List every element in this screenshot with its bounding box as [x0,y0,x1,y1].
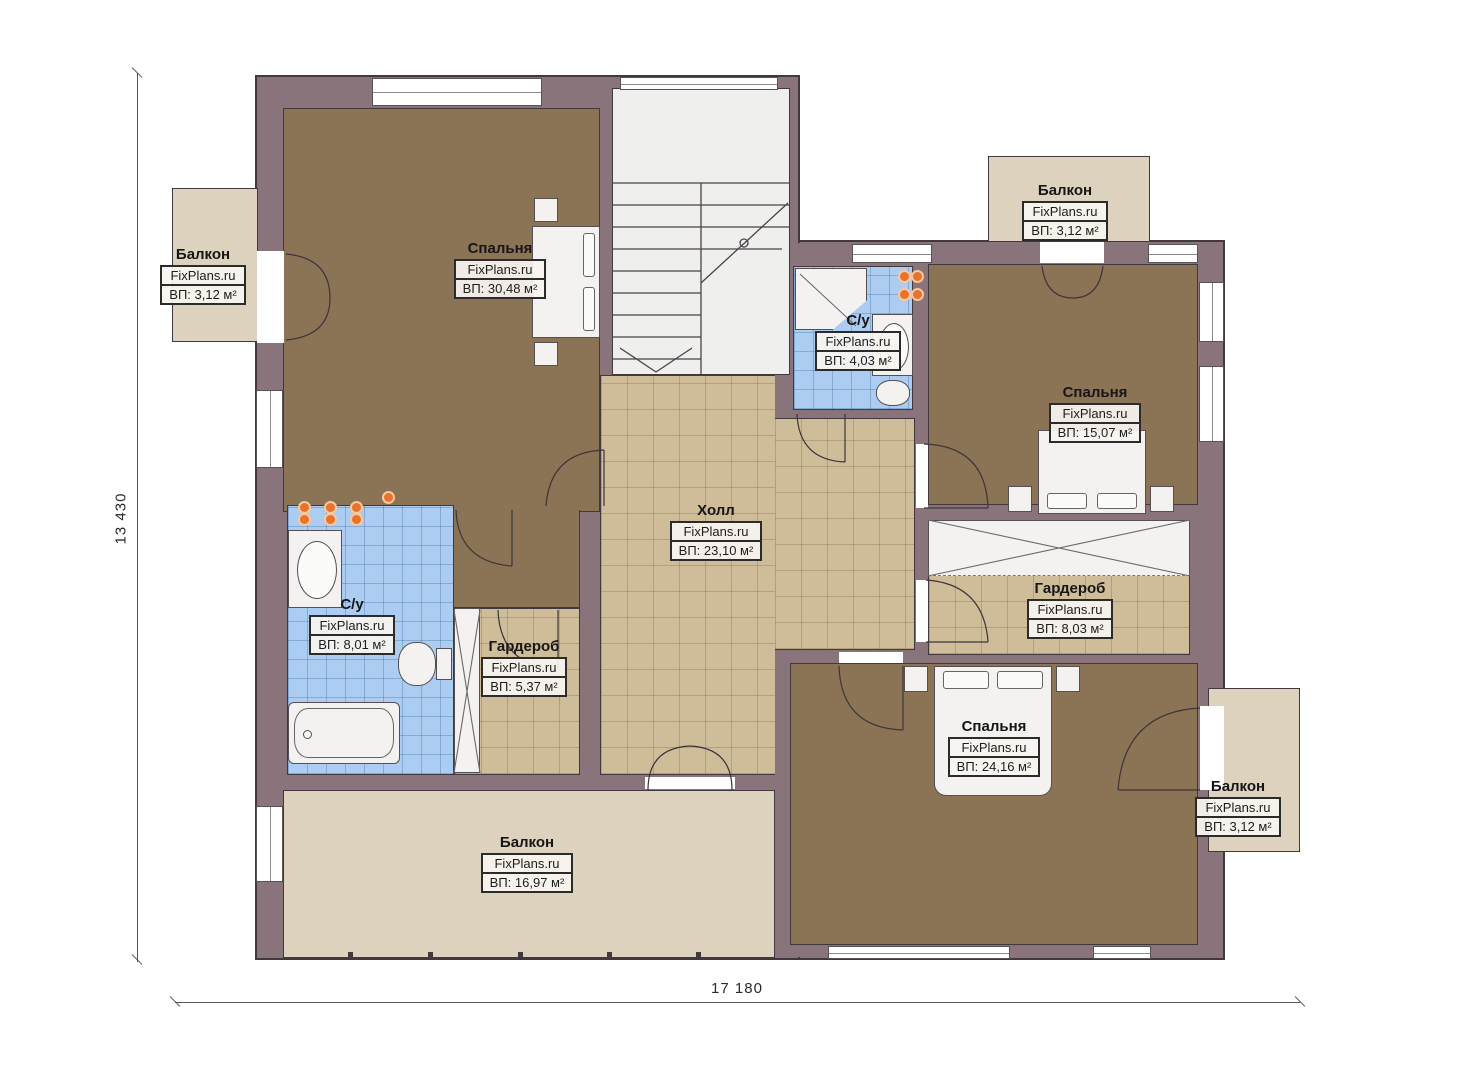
radiator-dot [900,290,909,299]
watermark: FixPlans.ru [1024,203,1105,222]
radiator-dot [913,272,922,281]
room-info-box: FixPlans.ru ВП: 24,16 м² [948,737,1041,777]
watermark: FixPlans.ru [672,523,761,542]
watermark: FixPlans.ru [456,261,545,280]
room-name: С/у [803,312,913,329]
dimension-line-vertical [137,73,138,962]
bathtub-drain [303,730,312,739]
room-name: Спальня [1040,384,1150,401]
window-top-staircase [620,77,778,90]
window-bottom-bedroom-2 [1093,946,1151,959]
radiator-dot [326,503,335,512]
window-right-wall [1199,366,1224,442]
room-name: Балкон [148,246,258,263]
room-area: ВП: 16,97 м² [483,874,572,891]
door-opening-bedroom-bottom [839,652,903,663]
door-opening-balcony-bottom [645,777,735,789]
room-name: Гардероб [1015,580,1125,597]
watermark: FixPlans.ru [483,855,572,874]
watermark: FixPlans.ru [1029,601,1110,620]
radiator-dot [913,290,922,299]
room-area: ВП: 3,12 м² [1024,222,1105,239]
room-name: Балкон [472,834,582,851]
radiator-dot [352,503,361,512]
room-label-wardrobe-small: Гардероб FixPlans.ru ВП: 5,37 м² [469,638,579,697]
radiator-dot [300,503,309,512]
room-label-balcony-bottom: Балкон FixPlans.ru ВП: 16,97 м² [472,834,582,893]
pillow [583,287,595,331]
room-label-hall: Холл FixPlans.ru ВП: 23,10 м² [661,502,771,561]
room-info-box: FixPlans.ru ВП: 5,37 м² [481,657,566,697]
pillow [1047,493,1087,509]
door-opening-bedroom-right [916,444,928,508]
sink-basin-left [297,541,337,599]
window-top-right-wall [852,244,932,263]
nightstand [534,342,558,366]
nightstand [1008,486,1032,512]
railing-post [607,952,612,957]
room-label-wardrobe-right: Гардероб FixPlans.ru ВП: 8,03 м² [1015,580,1125,639]
bathtub [288,702,400,764]
room-label-bathroom-top: С/у FixPlans.ru ВП: 4,03 м² [803,312,913,371]
room-area: ВП: 24,16 м² [950,758,1039,775]
room-info-box: FixPlans.ru ВП: 23,10 м² [670,521,763,561]
watermark: FixPlans.ru [483,659,564,678]
room-area: ВП: 4,03 м² [817,352,898,369]
staircase-floor [612,88,790,375]
room-info-box: FixPlans.ru ВП: 8,01 м² [309,615,394,655]
room-area: ВП: 15,07 м² [1051,424,1140,441]
railing-post [518,952,523,957]
room-name: Спальня [939,718,1049,735]
room-info-box: FixPlans.ru ВП: 30,48 м² [454,259,547,299]
pillow [1097,493,1137,509]
window-right-wall-upper [1199,282,1224,342]
radiator-dot [300,515,309,524]
room-label-bedroom-right: Спальня FixPlans.ru ВП: 15,07 м² [1040,384,1150,443]
room-label-bedroom-bottom: Спальня FixPlans.ru ВП: 24,16 м² [939,718,1049,777]
window-left-wall-lower [256,806,283,882]
radiator-dot [900,272,909,281]
room-info-box: FixPlans.ru ВП: 3,12 м² [1195,797,1280,837]
room-label-balcony-top-right: Балкон FixPlans.ru ВП: 3,12 м² [1010,182,1120,241]
room-area: ВП: 5,37 м² [483,678,564,695]
railing-post [428,952,433,957]
toilet-top [876,380,910,406]
room-name: Холл [661,502,771,519]
door-opening-balcony-left [257,251,284,343]
dimension-height-label: 13 430 [112,493,129,545]
room-name: С/у [297,596,407,613]
room-label-balcony-left: Балкон FixPlans.ru ВП: 3,12 м² [148,246,258,305]
hall-floor-main [600,375,775,775]
room-name: Балкон [1183,778,1293,795]
dimension-width-label: 17 180 [687,980,787,997]
nightstand [1150,486,1174,512]
window-top-bedroom [372,78,542,106]
window-top-right-corner [1148,244,1198,263]
hall-floor-right [775,418,915,650]
room-label-bathroom-left: С/у FixPlans.ru ВП: 8,01 м² [297,596,407,655]
watermark: FixPlans.ru [817,333,898,352]
radiator-dot [352,515,361,524]
pillow [997,671,1043,689]
room-label-bedroom-top-left: Спальня FixPlans.ru ВП: 30,48 м² [445,240,555,299]
room-info-box: FixPlans.ru ВП: 16,97 м² [481,853,574,893]
room-label-balcony-bottom-right: Балкон FixPlans.ru ВП: 3,12 м² [1183,778,1293,837]
watermark: FixPlans.ru [1197,799,1278,818]
wardrobe-right-cabinet [928,520,1190,576]
door-opening-wardrobe-right [916,580,928,642]
room-area: ВП: 3,12 м² [1197,818,1278,835]
dimension-line-horizontal [175,1002,1300,1003]
room-area: ВП: 8,01 м² [311,636,392,653]
nightstand [534,198,558,222]
watermark: FixPlans.ru [162,267,243,286]
nightstand [904,666,928,692]
room-area: ВП: 23,10 м² [672,542,761,559]
room-info-box: FixPlans.ru ВП: 15,07 м² [1049,403,1142,443]
radiator-dot [384,493,393,502]
door-opening-balcony-top-right [1040,242,1104,263]
room-name: Балкон [1010,182,1120,199]
watermark: FixPlans.ru [950,739,1039,758]
railing-post [696,952,701,957]
room-info-box: FixPlans.ru ВП: 8,03 м² [1027,599,1112,639]
pillow [583,233,595,277]
room-name: Гардероб [469,638,579,655]
room-area: ВП: 30,48 м² [456,280,545,297]
radiator-dot [326,515,335,524]
window-bottom-bedroom [828,946,1010,959]
window-left-wall [256,390,283,468]
bedroom-top-left-extension-floor [448,510,580,608]
toilet-tank-left [436,648,452,680]
room-area: ВП: 3,12 м² [162,286,243,303]
room-area: ВП: 8,03 м² [1029,620,1110,637]
pillow [943,671,989,689]
room-info-box: FixPlans.ru ВП: 3,12 м² [1022,201,1107,241]
nightstand [1056,666,1080,692]
floor-plan: Спальня FixPlans.ru ВП: 30,48 м² Балкон … [0,0,1473,1080]
watermark: FixPlans.ru [1051,405,1140,424]
room-name: Спальня [445,240,555,257]
watermark: FixPlans.ru [311,617,392,636]
room-info-box: FixPlans.ru ВП: 4,03 м² [815,331,900,371]
room-info-box: FixPlans.ru ВП: 3,12 м² [160,265,245,305]
railing-post [348,952,353,957]
